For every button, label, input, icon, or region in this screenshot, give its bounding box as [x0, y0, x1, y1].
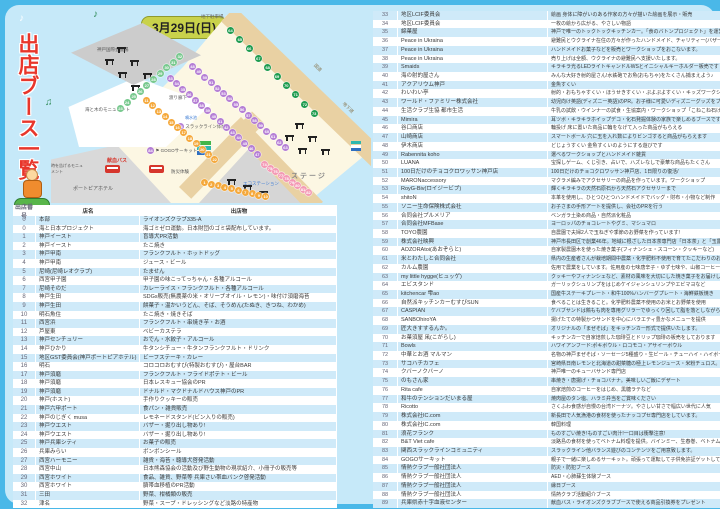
- items-cell: 焼肉屋のタン塩、ハラミ弁当をご賞味ください: [548, 395, 720, 404]
- table-row: 24神戸ウエストバザー・掘り出し物あり!: [13, 431, 337, 440]
- table-row: 84GOGOサーキット親子で一緒に楽しめるサーキット。頑張って運転して子供免許証…: [373, 456, 720, 465]
- booth-number-cell: 20: [13, 396, 36, 405]
- shop-name-cell: 和牛のテンションだいまる屋: [398, 395, 548, 404]
- booth-marker: 46: [248, 145, 255, 152]
- booth-marker: 63: [282, 144, 289, 151]
- booth-number-cell: 87: [373, 482, 398, 491]
- table-row: 49Rabennita koho選べるワークショップとハンドメイド雑貨: [373, 151, 720, 160]
- table-row: 70お菓須屋 凩(こがらし)キッチンカーで自家焙煎した珈琲豆とドリップ珈琲の販売…: [373, 334, 720, 343]
- items-cell: ものすごい焼き!ものすごい肉汁!一口目は衝撃注意!: [548, 430, 720, 439]
- table-row: 26兵庫みらいボンボンシール: [13, 448, 337, 457]
- booth-marker: 28: [150, 76, 157, 83]
- map-label-gogo: 84 ⚑ GOGOサーキット: [147, 147, 197, 154]
- picnic-table-icon: [243, 185, 252, 187]
- booth-table-right: 33地区LCIF委員会絵画 身体に障がいのある作家の方々が描いた絵画を展示・販売…: [373, 11, 720, 509]
- booth-number-cell: 82: [373, 438, 398, 447]
- items-cell: 献血バス・ライオンズクラブブースで使える商品引換券をプレゼント: [548, 499, 720, 508]
- shop-name-cell: 神戸イースト: [36, 242, 140, 251]
- table-row: 55ソニー生命保険株式会社お子さまの手形アートを提供し、会社のPRを行う: [373, 203, 720, 212]
- items-cell: 縁日ブース: [548, 482, 720, 491]
- booth-number-cell: 29: [13, 474, 36, 483]
- items-cell: 食べることは生きること。化学肥料農薬不使用のお米とお野菜を使用: [548, 299, 720, 308]
- booth-number-cell: 48: [373, 142, 398, 151]
- booth-marker: 23: [117, 105, 124, 112]
- shop-name-cell: 中華とお酒 マルマン: [398, 351, 548, 360]
- shop-name-cell: AOZORAtoi(あおぞらと): [398, 246, 548, 255]
- shop-name-cell: 谷口商店: [398, 124, 548, 133]
- shop-name-cell: ワールド・ファミリー株式会社: [398, 98, 548, 107]
- items-cell: 野菜・スープ・ドレッシングなど淡路の特産物: [140, 500, 337, 509]
- shop-name-cell: shitoN: [398, 194, 548, 203]
- map-label-gogo-text: GOGOサーキット: [161, 148, 198, 153]
- booth-number-cell: 9: [13, 302, 36, 311]
- booth-marker: 70: [283, 82, 290, 89]
- booth-number-cell: 35: [373, 28, 398, 37]
- shop-name-cell: 神戸須磨: [36, 371, 140, 380]
- shop-name-cell: 神戸ひかり: [36, 345, 140, 354]
- table-row: 78Ricottoさくふわ食感が自慢の台湾ドーナツ。やさしい甘さで幅広い世代に人…: [373, 403, 720, 412]
- booth-marker: 66: [246, 45, 253, 52]
- booth-number-cell: 24: [13, 431, 36, 440]
- shop-name-cell: 海の射的屋さん: [398, 72, 548, 81]
- booth-number-cell: 0: [13, 225, 36, 234]
- table-row: 45Mimira耳ツボ・キラキラホイップデコ・化石発掘体験の家族で楽しめるブース…: [373, 116, 720, 125]
- items-cell: 一枚の絵から広がる、やさしい物語: [548, 20, 720, 29]
- shop-name-cell: kitchencar 雫ao: [398, 290, 548, 299]
- shop-name-cell: 津名: [36, 500, 140, 509]
- table-row: 68SANBOhiroYA揚げたての特製かつサンドを中心にバラエティ豊かなメニュ…: [373, 316, 720, 325]
- items-cell: さくふわ食感が自慢の台湾ドーナツ。やさしい甘さで幅広い世代に人気: [548, 403, 720, 412]
- booth-marker: 72: [301, 101, 308, 108]
- table-row: 17神戸須磨フランクフルト・フライドポテト・ビール: [13, 371, 337, 380]
- shop-name-cell: 株式会社IC.com: [398, 412, 548, 421]
- shop-name-cell: Mimira: [398, 116, 548, 125]
- items-cell: 避難民とウクライナ在住の方々が作ったハンドメイド、チャリティー(バザー)(新品)…: [548, 37, 720, 46]
- booth-number-cell: 49: [373, 151, 398, 160]
- shop-name-cell: Smaids: [398, 63, 548, 72]
- table-row: 56合同会社プルメリアベンガラ土染め商品・自然派化粧品: [373, 212, 720, 221]
- booth-number-cell: 67: [373, 307, 398, 316]
- table-row: 52MARONaccessoryマクラメ編みでアクセサリーの商品を作っています。…: [373, 177, 720, 186]
- booth-number-cell: 64: [373, 281, 398, 290]
- table-row: 61米とわたしと合同会社県内の生産者さんが栽培期間中農薬・化学肥料不使用で育てた…: [373, 255, 720, 264]
- shop-name-cell: Peace in Ukraina: [398, 37, 548, 46]
- items-cell: 耳ツボ・キラキラホイップデコ・化石発掘体験の家族で楽しめるブースです♪: [548, 116, 720, 125]
- items-cell: フランクフルト・ホットドッグ: [140, 250, 337, 259]
- table-row: 72中華とお酒 マルマン名物の神戸まぜそば・ソーセージ5種盛り・生ビール・チュー…: [373, 351, 720, 360]
- booth-marker: 14: [162, 113, 169, 120]
- booth-number-cell: 84: [373, 456, 398, 465]
- shop-name-cell: 株式会社IC.com: [398, 421, 548, 430]
- booth-number-cell: 39: [373, 63, 398, 72]
- table-row: 36Peace in Ukraina避難民とウクライナ在住の方々が作ったハンドメ…: [373, 37, 720, 46]
- booth-number-cell: 21: [13, 405, 36, 414]
- items-cell: 佐用で農業をしています。佐用産の七味唐辛子・ゆず七味や、山椒コーヒーなど。: [548, 264, 720, 273]
- booth-number-cell: 47: [373, 133, 398, 142]
- booth-number-cell: 19: [13, 388, 36, 397]
- items-cell: ヨーロッパのチョコレートやグミ、マシュマロ: [548, 220, 720, 229]
- table-row: 8神戸生田SDGs販売(無農薬の米・オリーブオイル・レモン)・味付け須磨海苔: [13, 293, 337, 302]
- table-row: 82B&T Viet cafe淡路島の食材を使ってベトナム料理を提供。バインミー…: [373, 438, 720, 447]
- table-row: 50LUANA宝探しゲーム、くじ引き、占いで、ハズレなしで豪華な商品もたくさん: [373, 159, 720, 168]
- booth-marker: 1: [201, 179, 208, 186]
- flyer-page: 出店ブース一覧 ♪ ♪ ♫ 3月29日(日) 神戸国際会議場 海と木のモニュメン…: [0, 0, 720, 509]
- table-row: 54shitoN本革を使用し、ひとつひとつハンドメイドでバッグ・財布・小物など制…: [373, 194, 720, 203]
- table-row: 19神戸須磨ドナルド・マクドナルドハウス神戸のPR: [13, 388, 337, 397]
- items-cell: 売り上げは全額、ウクライナの避難民へ支援いたします。: [548, 55, 720, 64]
- shop-name-cell: 西宮浜: [36, 319, 140, 328]
- table-row: 31三田野菜、柑橘類の販売: [13, 491, 337, 500]
- shop-name-cell: 情熱クラブ一般社団法人: [398, 482, 548, 491]
- table-row: 48伊木商店どじょうすくい 金魚すくいのようにする遊びです: [373, 142, 720, 151]
- items-cell: 淡路島の食材を使ってベトナム料理を提供。バインミー、生春巻、ベトナムコーヒー: [548, 438, 720, 447]
- items-cell: キッチンカーで自家焙煎した珈琲豆とドリップ珈琲の販売をしております: [548, 334, 720, 343]
- picnic-table-icon: [227, 179, 236, 181]
- shop-name-cell: 情熱クラブ一般社団法人: [398, 464, 548, 473]
- booth-number-cell: 86: [373, 473, 398, 482]
- table-row: 73サコハチカフェ宮崎県日南レモンと北海道の甜菜糖の極上レモンジュース・米粉チュ…: [373, 360, 720, 369]
- shop-name-cell: 神戸生田: [36, 293, 140, 302]
- booth-number-cell: 69: [373, 325, 398, 334]
- booth-marker: 47: [254, 151, 261, 158]
- booth-marker: 31: [170, 59, 177, 66]
- items-cell: レモネードスタンド(ビン入りの販売): [140, 414, 337, 423]
- map-label-bosai: 防災体験: [171, 169, 189, 175]
- booth-number-cell: 37: [373, 46, 398, 55]
- shop-name-cell: お菓須屋 凩(こがらし): [398, 334, 548, 343]
- map-label-corridor: 渡り廊下: [169, 95, 187, 101]
- flag-icon: ⚑: [155, 148, 159, 153]
- items-cell: 選べるワークショップとハンドメイド雑貨: [548, 151, 720, 160]
- shop-name-cell: 神戸ウエスト: [36, 422, 140, 431]
- shop-name-cell: Ricotto: [398, 403, 548, 412]
- table-row: 34地区LCIF委員会一枚の絵から広がる、やさしい物語: [373, 20, 720, 29]
- items-cell: コロコロおむすび(特製おむすび)・屋台BAR: [140, 362, 337, 371]
- booth-number-cell: 3: [13, 250, 36, 259]
- shop-name-cell: 匠大きすするんか。: [398, 325, 548, 334]
- booth-number-cell: 65: [373, 290, 398, 299]
- booth-number-cell: 0: [13, 216, 36, 225]
- items-cell: 揚げたての特製かつサンドを中心にバラエティ豊かなメニューを提供: [548, 316, 720, 325]
- table-row: 27西宮ハーモニー雑貨・海苔・聴導犬啓発活動: [13, 457, 337, 466]
- booth-number-cell: 55: [373, 203, 398, 212]
- items-cell: 県内の生産者さんが栽培期間中農薬・化学肥料不使用で育てたこだわりのお米: [548, 255, 720, 264]
- items-cell: フランクフルト・串焼き芋・お酒: [140, 319, 337, 328]
- shop-name-cell: 神戸センチュリー: [36, 336, 140, 345]
- booth-number-cell: 27: [13, 457, 36, 466]
- booth-number-cell: 77: [373, 395, 398, 404]
- items-cell: 国産牛ステーキプレート・和牛100%ハンバーグプレート・海鮮鉄板焼き: [548, 290, 720, 299]
- booth-number-cell: 66: [373, 299, 398, 308]
- items-cell: どじょうすくい 金魚すくいのようにする遊びです: [548, 142, 720, 151]
- shop-name-cell: 関西スラックラインコミュニティ: [398, 447, 548, 456]
- table-row: 71Bowlsハワイアンフード:ポキボウル・ロコモコ・アサイーボウル: [373, 342, 720, 351]
- booth-number-cell: 23: [13, 422, 36, 431]
- booth-marker: 6: [235, 187, 242, 194]
- table-row: 63my little hygge(ヒュッゲ)クッキーやフィナンシェなど、素材の…: [373, 273, 720, 282]
- table-row: 5尼崎(尼崎レオクラブ)たません: [13, 268, 337, 277]
- shop-name-cell: 神戸のじぎく musa: [36, 414, 140, 423]
- shop-name-cell: 神戸イースト: [36, 233, 140, 242]
- booth-number-cell: 6: [13, 276, 36, 285]
- booth-number-cell: 38: [373, 55, 398, 64]
- table-row: 40海の射的屋さんみんな大好き射的屋さん!水鉄砲でお魚(おもちゃ)をたくさん捕ま…: [373, 72, 720, 81]
- booth-number-cell: 75: [373, 377, 398, 386]
- items-cell: 牛乳の試飲・ウインナーの試食・生協案内・ワークショップ「こねこね石けん」: [548, 107, 720, 116]
- items-cell: 100日だけのチョコクロワッサン神戸店、1日限りの復活/: [548, 168, 720, 177]
- shop-name-cell: 浪花フランク: [398, 430, 548, 439]
- items-cell: 牛タンシチュー・牛タンフランクフルト・ドリンク: [140, 345, 337, 354]
- items-cell: オリジナルの「まぜそば」をキッチンカー形式で提供いたします。: [548, 325, 720, 334]
- header-shop-name: 店名: [35, 207, 138, 215]
- items-cell: 宝探しゲーム、くじ引き、占いで、ハズレなしで豪華な商品もたくさん: [548, 159, 720, 168]
- items-cell: 射的・おもちゃすくい・ほうせきすくい・ぷよぷよすくい・キッズワークショップ: [548, 89, 720, 98]
- items-cell: ハンドメイドお菓子などを販売とワークショップをおこないます。: [548, 46, 720, 55]
- booth-number-cell: 62: [373, 264, 398, 273]
- booth-number-cell: 44: [373, 107, 398, 116]
- shop-name-cell: 神戸須磨: [36, 379, 140, 388]
- table-row: 38Peace in Ukraina売り上げは全額、ウクライナの避難民へ支援いた…: [373, 55, 720, 64]
- booth-number-cell: 71: [373, 342, 398, 351]
- items-cell: ケバブサンドは鶏もも肉を専用グリラーでゆっくり回して脂を落としながら焼き上げます…: [548, 307, 720, 316]
- picnic-table-icon: [117, 47, 126, 49]
- items-cell: 盲導犬PR活動: [140, 233, 337, 242]
- items-cell: 餅菓子・温かいうどん、そば、そうめん(たぬき、きつね、わかめ): [140, 302, 337, 311]
- items-cell: スマートボール 穴に玉を入れ数によりビンゴすると商品がもらえます: [548, 133, 720, 142]
- table-row: 0本部ライオンズクラブ335-A: [13, 216, 337, 225]
- booth-number-cell: 63: [373, 273, 398, 282]
- picnic-table-icon: [105, 59, 114, 61]
- table-row: 85情熱クラブ一般社団法人防災・防犯ブース: [373, 464, 720, 473]
- bus-icon: [105, 165, 120, 173]
- table-row: 69匠大きすするんか。オリジナルの「まぜそば」をキッチンカー形式で提供いたします…: [373, 325, 720, 334]
- table-row: 0海と日本プロジェクト海ゴミゼロ運動。日本財団のゴミ袋配布しています。: [13, 225, 337, 234]
- shop-name-cell: 神戸生田: [36, 302, 140, 311]
- table-row: 28西宮中山日本熊森協会の活動及び野生動物の現状紹介、小冊子の販売等: [13, 465, 337, 474]
- shop-name-cell: わいわい亭: [398, 89, 548, 98]
- table-row: 87情熱クラブ一般社団法人縁日ブース: [373, 482, 720, 491]
- booth-number-cell: 54: [373, 194, 398, 203]
- table-row: 14神戸ひかり牛タンシチュー・牛タンフランクフルト・ドリンク: [13, 345, 337, 354]
- booth-number-cell: 40: [373, 72, 398, 81]
- booth-number-cell: 42: [373, 89, 398, 98]
- items-cell: 韓国料理: [548, 421, 720, 430]
- shop-name-cell: Rita cafe: [398, 386, 548, 395]
- items-cell: バザー・掘り出し物あり!: [140, 431, 337, 440]
- booth-marker: 73: [311, 110, 318, 117]
- items-cell: 幼児向け英語(ディズニー英語)のPR。お子様に可愛いディズニーグッズをプレゼント…: [548, 98, 720, 107]
- booth-number-cell: 2: [13, 242, 36, 251]
- shop-name-cell: 合同会社MFBase: [398, 220, 548, 229]
- shop-name-cell: RoyG-Biv(ロイジービブ): [398, 185, 548, 194]
- items-cell: ドナルド・マクドナルドハウス神戸のPR: [140, 388, 337, 397]
- items-cell: 宮崎県日南レモンと北海道の甜菜糖の極上レモンジュース・米粉チュロス。: [548, 360, 720, 369]
- picnic-table-icon: [298, 148, 307, 150]
- table-row: 25神戸兵庫シティお菓子の販売: [13, 439, 337, 448]
- shop-name-cell: 兵庫みらい: [36, 448, 140, 457]
- table-row: 75のもさん家串焼き・唐揚げ・チョコバナナ。美味しいご飯にデザート: [373, 377, 720, 386]
- table-row: 37Peace in Ukrainaハンドメイドお菓子などを販売とワークショップ…: [373, 46, 720, 55]
- table-row: 77和牛のテンションだいまる屋焼肉屋のタン塩、ハラミ弁当をご賞味ください: [373, 395, 720, 404]
- table-row: 9神戸生田餅菓子・温かいうどん、そば、そうめん(たぬき、きつね、わかめ): [13, 302, 337, 311]
- items-cell: SDGs販売(無農薬の米・オリーブオイル・レモン)・味付け須磨海苔: [140, 293, 337, 302]
- items-cell: 新長田で人気漁港の食材を使ったナッコプセ専門店をしています。: [548, 412, 720, 421]
- items-cell: AED・心肺蘇生体験ブース: [548, 473, 720, 482]
- table-row: 12芦屋東ベビーカステラ: [13, 328, 337, 337]
- booth-marker: 69: [274, 73, 281, 80]
- items-cell: 甲子園の味こってっちゃん・各種アルコール: [140, 276, 337, 285]
- items-cell: ベンガラ土染め商品・自然派化粧品: [548, 212, 720, 221]
- items-cell: ジュース・ビール: [140, 259, 337, 268]
- items-cell: お子さまの手形アートを提供し、会社のPRを行う: [548, 203, 720, 212]
- booth-marker: 61: [270, 133, 277, 140]
- picnic-table-icon: [131, 85, 140, 87]
- booth-marker: 36: [186, 91, 193, 98]
- booth-number-cell: 25: [13, 439, 36, 448]
- booth-number-cell: 18: [13, 379, 36, 388]
- booth-number-cell: 36: [373, 37, 398, 46]
- booth-number-cell: 78: [373, 403, 398, 412]
- items-cell: 自家製農園木を使った焼き菓子(フィナンシェ・スコーン・クッキーなど): [548, 246, 720, 255]
- table-row: 83関西スラックラインコミュニティスラックライン他バランス遊びのコンテンツをご用…: [373, 447, 720, 456]
- table-row: 11西宮浜フランクフルト・串焼き芋・お酒: [13, 319, 337, 328]
- table-row: 18神戸須磨日本レスキュー協会のPR: [13, 379, 337, 388]
- booth-number-cell: 53: [373, 185, 398, 194]
- items-cell: 日本熊森協会の活動及び野生動物の現状紹介、小冊子の販売等: [140, 465, 337, 474]
- items-cell: フランクフルト・フライドポテト・ビール: [140, 371, 337, 380]
- items-cell: クッキーやフィナンシェなど、素材の風味を大切にした焼き菓子をお届けします。: [548, 273, 720, 282]
- items-cell: 親子で一緒に楽しめるサーキット。頑張って運転して子供免許証ゲットしてね!: [548, 456, 720, 465]
- table-row: 86情熱クラブ一般社団法人AED・心肺蘇生体験ブース: [373, 473, 720, 482]
- table-row: 67CASPIANケバブサンドは鶏もも肉を専用グリラーでゆっくり回して脂を落とし…: [373, 307, 720, 316]
- items-cell: 食品、雑貨、野菜等 兵庫さい帯血バンク啓発活動: [140, 474, 337, 483]
- table-row: 59株式会社映興神戸市長田区で創業46年。地域に根ざした日本茶専門店「日本茶」と…: [373, 238, 720, 247]
- booth-marker: 51: [208, 79, 215, 86]
- booth-number-cell: 11: [13, 319, 36, 328]
- table-row: 51100日だけのチョコクロワッサン神戸店100日だけのチョコクロワッサン神戸店…: [373, 168, 720, 177]
- booth-number-cell: 76: [373, 386, 398, 395]
- shop-name-cell: 山崎商店: [398, 133, 548, 142]
- table-row: 1神戸イースト盲導犬PR活動: [13, 233, 337, 242]
- picnic-table-icon: [295, 123, 304, 125]
- table-row: 80株式会社IC.com韓国料理: [373, 421, 720, 430]
- booth-number-cell: 33: [373, 11, 398, 20]
- booth-number-cell: 30: [13, 482, 36, 491]
- shop-name-cell: 本部: [36, 216, 140, 225]
- booth-number-cell: 52: [373, 177, 398, 186]
- items-cell: 名物の神戸まぜそば・ソーセージ5種盛り・生ビール・チューハイ・ハイボール: [548, 351, 720, 360]
- header-items: 出店物: [138, 207, 337, 215]
- shop-name-cell: CASPIAN: [398, 307, 548, 316]
- booth-number-cell: 14: [13, 345, 36, 354]
- booth-number-cell: 15: [13, 354, 36, 363]
- booth-number-cell: 85: [373, 464, 398, 473]
- shop-name-cell: 神戸兵庫シティ: [36, 439, 140, 448]
- table-row: 6西宮甲子園甲子園の味こってっちゃん・各種アルコール: [13, 276, 337, 285]
- booth-marker: 68: [264, 64, 271, 71]
- table-row: 21神戸六甲ポート食パン・雑貨販売: [13, 405, 337, 414]
- booth-number-cell: 43: [373, 98, 398, 107]
- table-row: 41アクアリウム神戸金魚すくい: [373, 81, 720, 90]
- booth-number-cell: 1: [13, 233, 36, 242]
- picnic-table-icon: [308, 136, 317, 138]
- shop-name-cell: 情熱クラブ一般社団法人: [398, 473, 548, 482]
- booth-number-cell: 72: [373, 351, 398, 360]
- items-cell: 金魚すくい: [548, 81, 720, 90]
- booth-number-cell: 58: [373, 229, 398, 238]
- signboard-icon: [351, 141, 361, 151]
- table-row: 62カルム農園佐用で農業をしています。佐用産の七味唐辛子・ゆず七味や、山椒コーヒ…: [373, 264, 720, 273]
- booth-table-left: 出店番号 店名 出店物 0本部ライオンズクラブ335-A0海と日本プロジェクト海…: [13, 205, 337, 508]
- booth-number-cell: 88: [373, 491, 398, 500]
- booth-marker: 41: [217, 118, 224, 125]
- items-cell: みんな大好き射的屋さん!水鉄砲でお魚(おもちゃ)をたくさん捕まえよう♪: [548, 72, 720, 81]
- booth-number-cell: 60: [373, 246, 398, 255]
- picnic-table-icon: [143, 73, 152, 75]
- shop-name-cell: 株式会社映興: [398, 238, 548, 247]
- table-row: 29西宮ホワイト食品、雑貨、野菜等 兵庫さい帯血バンク啓発活動: [13, 474, 337, 483]
- shop-name-cell: B&T Viet cafe: [398, 438, 548, 447]
- booth-number-cell: 74: [373, 368, 398, 377]
- items-cell: ガーリックシュリンプをはじめケイジャンシュリンプやエビマヨなど: [548, 281, 720, 290]
- table-row: 15地区GST委員会(神戸ポートピアホテル)ビーフステーキ・カレー: [13, 354, 337, 363]
- shop-name-cell: カルム農園: [398, 264, 548, 273]
- items-cell: 本革を使用し、ひとつひとつハンドメイドでバッグ・財布・小物など制作: [548, 194, 720, 203]
- table-row: 46谷口商店輪投げ 床に置いた商品に輪をなげて入った商品がもらえる: [373, 124, 720, 133]
- table-row: 43ワールド・ファミリー株式会社幼児向け英語(ディズニー英語)のPR。お子様に可…: [373, 98, 720, 107]
- table-row: 64エビスタンドガーリックシュリンプをはじめケイジャンシュリンプやエビマヨなど: [373, 281, 720, 290]
- table-row: 39Smaidsキラキラ光るLEDライトキャンドルWSとイニシャルキーホルダー販…: [373, 63, 720, 72]
- items-cell: たません: [140, 268, 337, 277]
- items-cell: お菓子の販売: [140, 439, 337, 448]
- items-cell: マクラメ編みでアクセサリーの商品を作っています。ワークショップ: [548, 177, 720, 186]
- table-row: 65kitchencar 雫ao国産牛ステーキプレート・和牛100%ハンバーグプ…: [373, 290, 720, 299]
- event-map: 神戸国際会議場 海と木のモニュメント 渡り廊下 83 スラックライン体験 84 …: [51, 13, 371, 203]
- items-cell: 雑貨・海苔・聴導犬啓発活動: [140, 457, 337, 466]
- items-cell: 海ゴミゼロ運動。日本財団のゴミ袋配布しています。: [140, 225, 337, 234]
- shop-name-cell: アクアリウム神戸: [398, 81, 548, 90]
- booth-number-cell: 83: [373, 447, 398, 456]
- map-label-stage: ステージ: [291, 171, 327, 181]
- booth-number-cell: 31: [13, 491, 36, 500]
- music-note-icon: ♪: [19, 13, 24, 24]
- items-cell: 輪投げ 床に置いた商品に輪をなげて入った商品がもらえる: [548, 124, 720, 133]
- table-row: 13神戸センチュリーおでん・水餃子・アルコール: [13, 336, 337, 345]
- shop-name-cell: MARONaccessory: [398, 177, 548, 186]
- table-row: 32津名野菜・スープ・ドレッシングなど淡路の特産物: [13, 500, 337, 509]
- booth-number-cell: 22: [13, 414, 36, 423]
- booth-number-cell: 70: [373, 334, 398, 343]
- table-row: 22神戸のじぎく musaレモネードスタンド(ビン入りの販売): [13, 414, 337, 423]
- shop-name-cell: エビスタンド: [398, 281, 548, 290]
- booth-number-cell: 17: [13, 371, 36, 380]
- booth-number-cell: 73: [373, 360, 398, 369]
- map-label-clock-monument: 時を告げるモニュメント: [51, 163, 85, 175]
- items-cell: 情熱クラブ活動紹介ブース: [548, 491, 720, 500]
- shop-name-cell: Peace in Ukraina: [398, 46, 548, 55]
- booth-marker: 26: [137, 88, 144, 95]
- shop-name-cell: 兵庫県赤十字血液センター: [398, 499, 548, 508]
- shop-name-cell: Peace in Ukraina: [398, 55, 548, 64]
- booth-number-cell: 7: [13, 285, 36, 294]
- picnic-table-icon: [130, 60, 139, 62]
- items-cell: ベビーカステラ: [140, 328, 337, 337]
- shop-name-cell: 尼崎(尼崎レオクラブ): [36, 268, 140, 277]
- items-cell: キラキラ光るLEDライトキャンドルWSとイニシャルキーホルダー販売です: [548, 63, 720, 72]
- shop-name-cell: my little hygge(ヒュッゲ): [398, 273, 548, 282]
- booth-number-cell: 50: [373, 159, 398, 168]
- shop-name-cell: クバーノクバーノ: [398, 368, 548, 377]
